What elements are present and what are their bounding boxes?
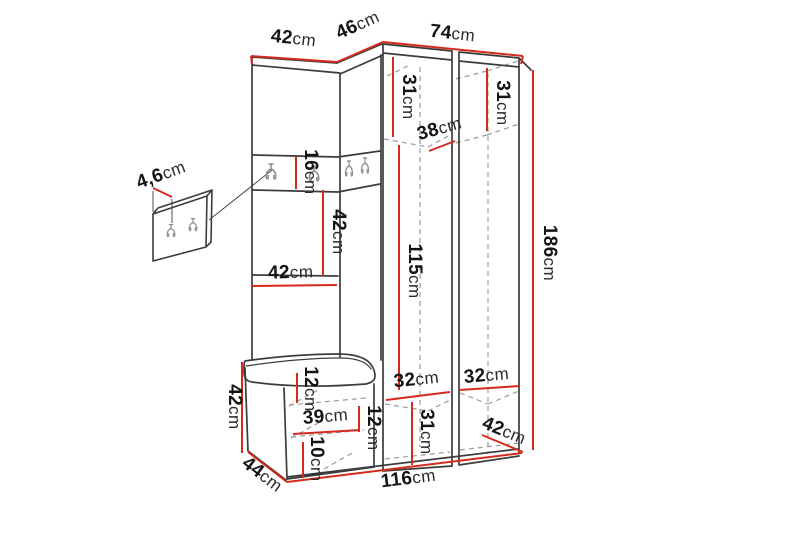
furniture-dimension-diagram: 42cm 46cm 74cm 31cm 31cm 38cm 4,6cm 16cm… xyxy=(0,0,800,533)
dim-top-width-corner-section: 46cm xyxy=(333,6,383,44)
dim-hook-panel-thickness: 4,6cm xyxy=(134,156,189,193)
leader-line xyxy=(209,170,272,220)
coat-hook-icon xyxy=(266,164,275,179)
dim-bench-depth: 44cm xyxy=(238,453,287,497)
dim-bench-top-section-height: 12cm xyxy=(300,366,321,411)
dim-wardrobe-door-height: 115cm xyxy=(404,243,425,298)
dim-upper-compartment-height-left: 31cm xyxy=(398,74,419,119)
dim-bench-base-height: 10cm xyxy=(306,436,327,481)
dim-upper-compartment-height-right: 31cm xyxy=(492,80,513,125)
coat-hook-icon xyxy=(361,158,368,173)
wall-hook-panel xyxy=(153,170,272,261)
dim-lower-compartment-height: 31cm xyxy=(416,409,437,454)
coat-hook-icon xyxy=(345,161,352,176)
dimension-labels: 42cm 46cm 74cm 31cm 31cm 38cm 4,6cm 16cm… xyxy=(134,6,560,497)
dim-lower-compartment-width-left: 32cm xyxy=(393,367,440,393)
dim-hook-rail-height: 16cm xyxy=(300,149,321,194)
dim-top-width-wardrobe: 74cm xyxy=(429,21,476,47)
dim-lower-compartment-width-right: 32cm xyxy=(463,363,510,388)
dim-total-height: 186cm xyxy=(539,225,560,281)
coat-hook-icon xyxy=(189,219,197,231)
dim-open-shelf-width: 42cm xyxy=(268,261,314,284)
dim-bench-height: 42cm xyxy=(224,384,245,429)
diagram-canvas: 42cm 46cm 74cm 31cm 31cm 38cm 4,6cm 16cm… xyxy=(0,0,800,533)
dim-bench-shelf-width: 39cm xyxy=(302,404,349,429)
dim-top-width-left-panel: 42cm xyxy=(270,26,317,52)
dim-bench-side-section-height: 12cm xyxy=(363,405,384,450)
coat-hook-icon xyxy=(167,225,175,237)
dim-open-section-height: 42cm xyxy=(328,209,349,254)
